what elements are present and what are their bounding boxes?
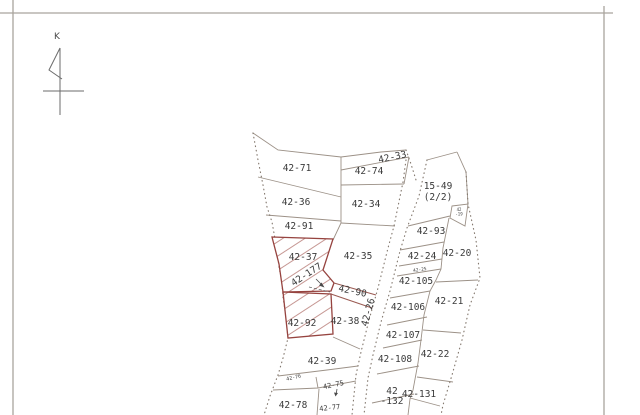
north-label: K	[54, 32, 61, 42]
parcel-label-42-91: 42-91	[285, 221, 314, 232]
boundary-42-107-42-108	[383, 340, 422, 348]
north-arrow-needle	[43, 48, 84, 115]
scanned-map-page: K	[0, 0, 640, 415]
parcel-label-42-106: 42-106	[391, 302, 426, 313]
parcel-label-42-92: 42-92	[288, 318, 317, 329]
parcel-label-42-131: 42-131	[402, 389, 437, 400]
boundary-top-left-cluster	[253, 133, 341, 157]
boundary-42-108-42-132	[377, 366, 419, 374]
boundary-15-49-top	[427, 152, 457, 160]
parcel-label-42-20: 42-20	[443, 248, 472, 259]
parcel-label-42-25: 42-25	[413, 266, 428, 274]
parcel-label-42-37: 42-37	[289, 252, 318, 263]
cadastral-map: K	[0, 0, 640, 415]
parcel-label-42-39: 42-39	[308, 356, 337, 367]
parcel-label-42-75: 42-75	[322, 379, 344, 391]
parcel-label-42-34: 42-34	[352, 199, 381, 210]
boundary-42-93-42-24	[400, 242, 444, 250]
parcel-label-15-49: 15-49(2/2)	[424, 181, 453, 203]
parcel-label-42-108: 42-108	[378, 354, 413, 365]
parcel-label-42-105: 42-105	[399, 276, 433, 287]
parcel-label-42-132: 42-132	[381, 386, 404, 407]
boundary-42-71-42-36	[258, 177, 341, 197]
leader-arrowhead-42-75	[334, 393, 338, 397]
parcel-label-42-26: 42-26	[360, 297, 378, 328]
boundary-column-divider-left	[333, 157, 341, 240]
parcel-label-42-78: 42-78	[279, 400, 308, 411]
parcel-label-42-93: 42-93	[417, 226, 446, 237]
parcel-label-42-71: 42-71	[283, 163, 312, 174]
parcel-label-42-24: 42-24	[408, 251, 437, 262]
boundary-42-105-42-106	[390, 291, 430, 298]
parcel-label-42-107: 42-107	[386, 330, 420, 341]
boundary-42-74-42-34	[341, 184, 404, 185]
boundary-42-106-42-107	[387, 317, 427, 325]
boundary-15-49-right	[457, 152, 468, 204]
parcel-label-42-22: 42-22	[421, 349, 450, 360]
boundary-42-22-42-131	[417, 377, 453, 382]
boundary-42-21-42-22	[423, 330, 461, 333]
parcel-label-42-77: 42-77	[319, 403, 341, 413]
boundary-42-74-right	[404, 157, 409, 184]
parcel-label-42-38: 42-38	[331, 316, 360, 327]
boundary-42-34-42-35	[341, 223, 395, 226]
parcel-label-42-21: 42-21	[435, 296, 464, 307]
north-arrow: K	[43, 32, 84, 115]
parcel-42-92-highlight	[283, 292, 333, 338]
parcel-label-42-36: 42-36	[282, 197, 311, 208]
boundary-42-39-bottom	[278, 366, 358, 376]
parcel-label-42-35: 42-35	[344, 251, 373, 262]
boundary-15-49-42-93	[408, 216, 450, 226]
boundary-42-76-42-75	[316, 377, 318, 388]
boundary-42-38-42-39	[333, 337, 360, 349]
parcel-label-42-74: 42-74	[355, 166, 384, 177]
parcel-label-42-19: 42-19	[455, 207, 463, 217]
boundary-42-20-42-21	[436, 280, 478, 282]
